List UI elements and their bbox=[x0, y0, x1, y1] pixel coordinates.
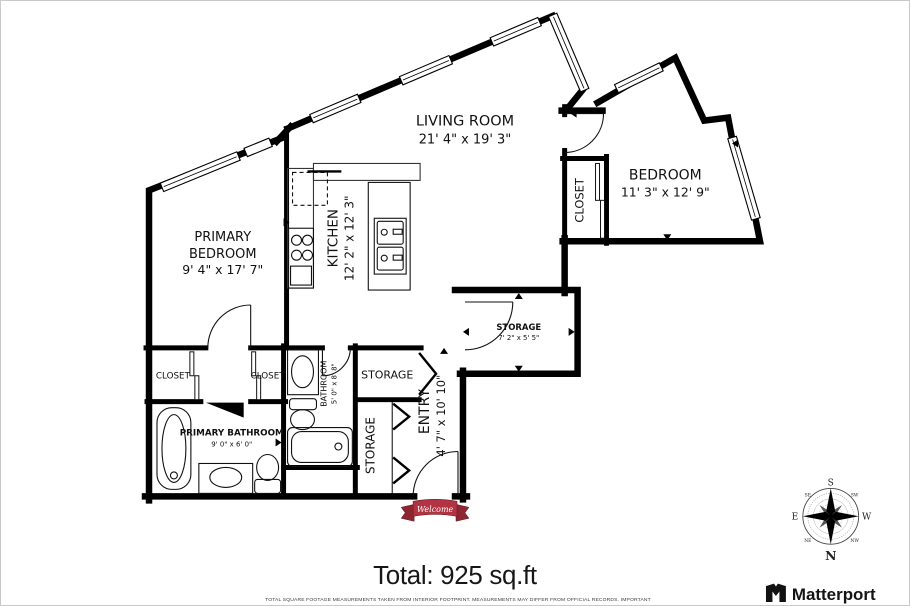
room-label-closet-right: CLOSET bbox=[251, 372, 286, 382]
room-label-living: LIVING ROOM bbox=[416, 114, 514, 130]
compass-west-label: W bbox=[862, 512, 872, 522]
disclaimer-text: TOTAL SQUARE FOOTAGE MEASUREMENTS TAKEN … bbox=[265, 597, 651, 603]
bifold-door-icon bbox=[393, 457, 409, 483]
window-icon bbox=[614, 63, 663, 93]
arrow-icon bbox=[515, 293, 523, 299]
primary-bathroom-door-icon bbox=[206, 403, 244, 418]
welcome-text: Welcome bbox=[417, 505, 454, 514]
window-icon bbox=[310, 94, 361, 123]
room-label-closet-left: CLOSET bbox=[156, 372, 191, 382]
ribbon-flag-left bbox=[401, 504, 414, 521]
compass-nw-label: NW bbox=[850, 538, 859, 544]
room-dims-primary-bathroom: 9' 0" x 6' 0" bbox=[211, 441, 252, 449]
room-label-storage-lower: STORAGE bbox=[363, 417, 377, 474]
floorplan-svg: LIVING ROOM 21' 4" x 19' 3" BEDROOM 11' … bbox=[1, 1, 909, 605]
ribbon-flag-right bbox=[456, 504, 469, 521]
kitchen-island-icon bbox=[368, 182, 410, 290]
room-dims-bathroom: 5' 0" x 8' 8" bbox=[330, 363, 338, 404]
room-label-storage-main: STORAGE bbox=[496, 322, 541, 332]
primary-bedroom-door-arc bbox=[208, 305, 251, 348]
doors bbox=[206, 114, 604, 497]
room-dims-entry: 4' 7" x 10' 10" bbox=[434, 375, 448, 457]
compass-south-label: S bbox=[828, 478, 834, 488]
sliding-door-icon bbox=[190, 352, 199, 400]
room-label-primary-bedroom-1: PRIMARY bbox=[194, 230, 251, 245]
sink-icon bbox=[288, 350, 319, 395]
window-icon bbox=[728, 136, 760, 220]
room-label-primary-bathroom: PRIMARY BATHROOM bbox=[180, 429, 284, 439]
room-labels: LIVING ROOM 21' 4" x 19' 3" BEDROOM 11' … bbox=[156, 114, 710, 474]
room-label-storage-upper: STORAGE bbox=[361, 369, 413, 382]
compass-sw-label: SW bbox=[851, 492, 859, 498]
room-dims-living: 21' 4" x 19' 3" bbox=[419, 133, 512, 148]
matterport-logo-text: Matterport bbox=[792, 585, 876, 604]
bathtub-icon bbox=[157, 408, 191, 490]
compass-east-label: E bbox=[792, 512, 799, 522]
room-label-bathroom: BATHROOM bbox=[319, 361, 328, 407]
arrow-icon bbox=[569, 328, 575, 336]
room-dims-bedroom: 11' 3" x 12' 9" bbox=[621, 184, 710, 199]
matterport-logo-icon bbox=[766, 584, 786, 602]
vanity-sink-icon bbox=[199, 463, 253, 493]
bifold-door-icon bbox=[393, 404, 409, 430]
sliding-door-icon bbox=[596, 163, 605, 238]
compass-se-label: SE bbox=[805, 492, 811, 498]
room-dims-kitchen: 12' 2" x 12' 3" bbox=[342, 195, 356, 280]
window-icon bbox=[399, 56, 452, 85]
arrow-icon bbox=[463, 328, 469, 336]
window-icon bbox=[160, 152, 240, 192]
front-door-arc bbox=[413, 452, 458, 497]
stove-icon bbox=[289, 228, 314, 288]
arrow-icon bbox=[440, 348, 448, 354]
floorplan-page: LIVING ROOM 21' 4" x 19' 3" BEDROOM 11' … bbox=[0, 0, 910, 606]
compass-north-label: N bbox=[825, 548, 836, 563]
welcome-ribbon: Welcome bbox=[401, 499, 469, 521]
room-dims-primary-bedroom: 9' 4" x 17' 7" bbox=[182, 262, 263, 277]
toilet-icon bbox=[290, 399, 317, 430]
window-icon bbox=[490, 17, 541, 46]
toilet-icon bbox=[255, 454, 281, 493]
upper-cabinet-icon bbox=[293, 172, 328, 205]
matterport-logo: Matterport bbox=[766, 584, 876, 604]
window-icon bbox=[549, 13, 589, 92]
room-label-entry: ENTRY bbox=[417, 389, 433, 435]
room-dims-storage-main: 7' 2" x 5' 5" bbox=[498, 334, 539, 342]
sliding-doors bbox=[190, 163, 605, 399]
compass-ne-label: NE bbox=[804, 538, 811, 544]
room-label-primary-bedroom-2: BEDROOM bbox=[189, 247, 257, 262]
bathtub-icon bbox=[288, 428, 353, 467]
arrow-icon bbox=[276, 439, 282, 447]
total-area-label: Total: 925 sq.ft bbox=[373, 562, 538, 590]
room-label-closet-bedroom: CLOSET bbox=[573, 177, 587, 222]
window-icon bbox=[244, 138, 272, 157]
room-label-kitchen: KITCHEN bbox=[326, 209, 341, 267]
room-label-bedroom: BEDROOM bbox=[629, 167, 702, 183]
compass-rose: S E W SE SW NE NW N bbox=[792, 478, 872, 563]
bedroom-door-arc bbox=[565, 114, 604, 153]
